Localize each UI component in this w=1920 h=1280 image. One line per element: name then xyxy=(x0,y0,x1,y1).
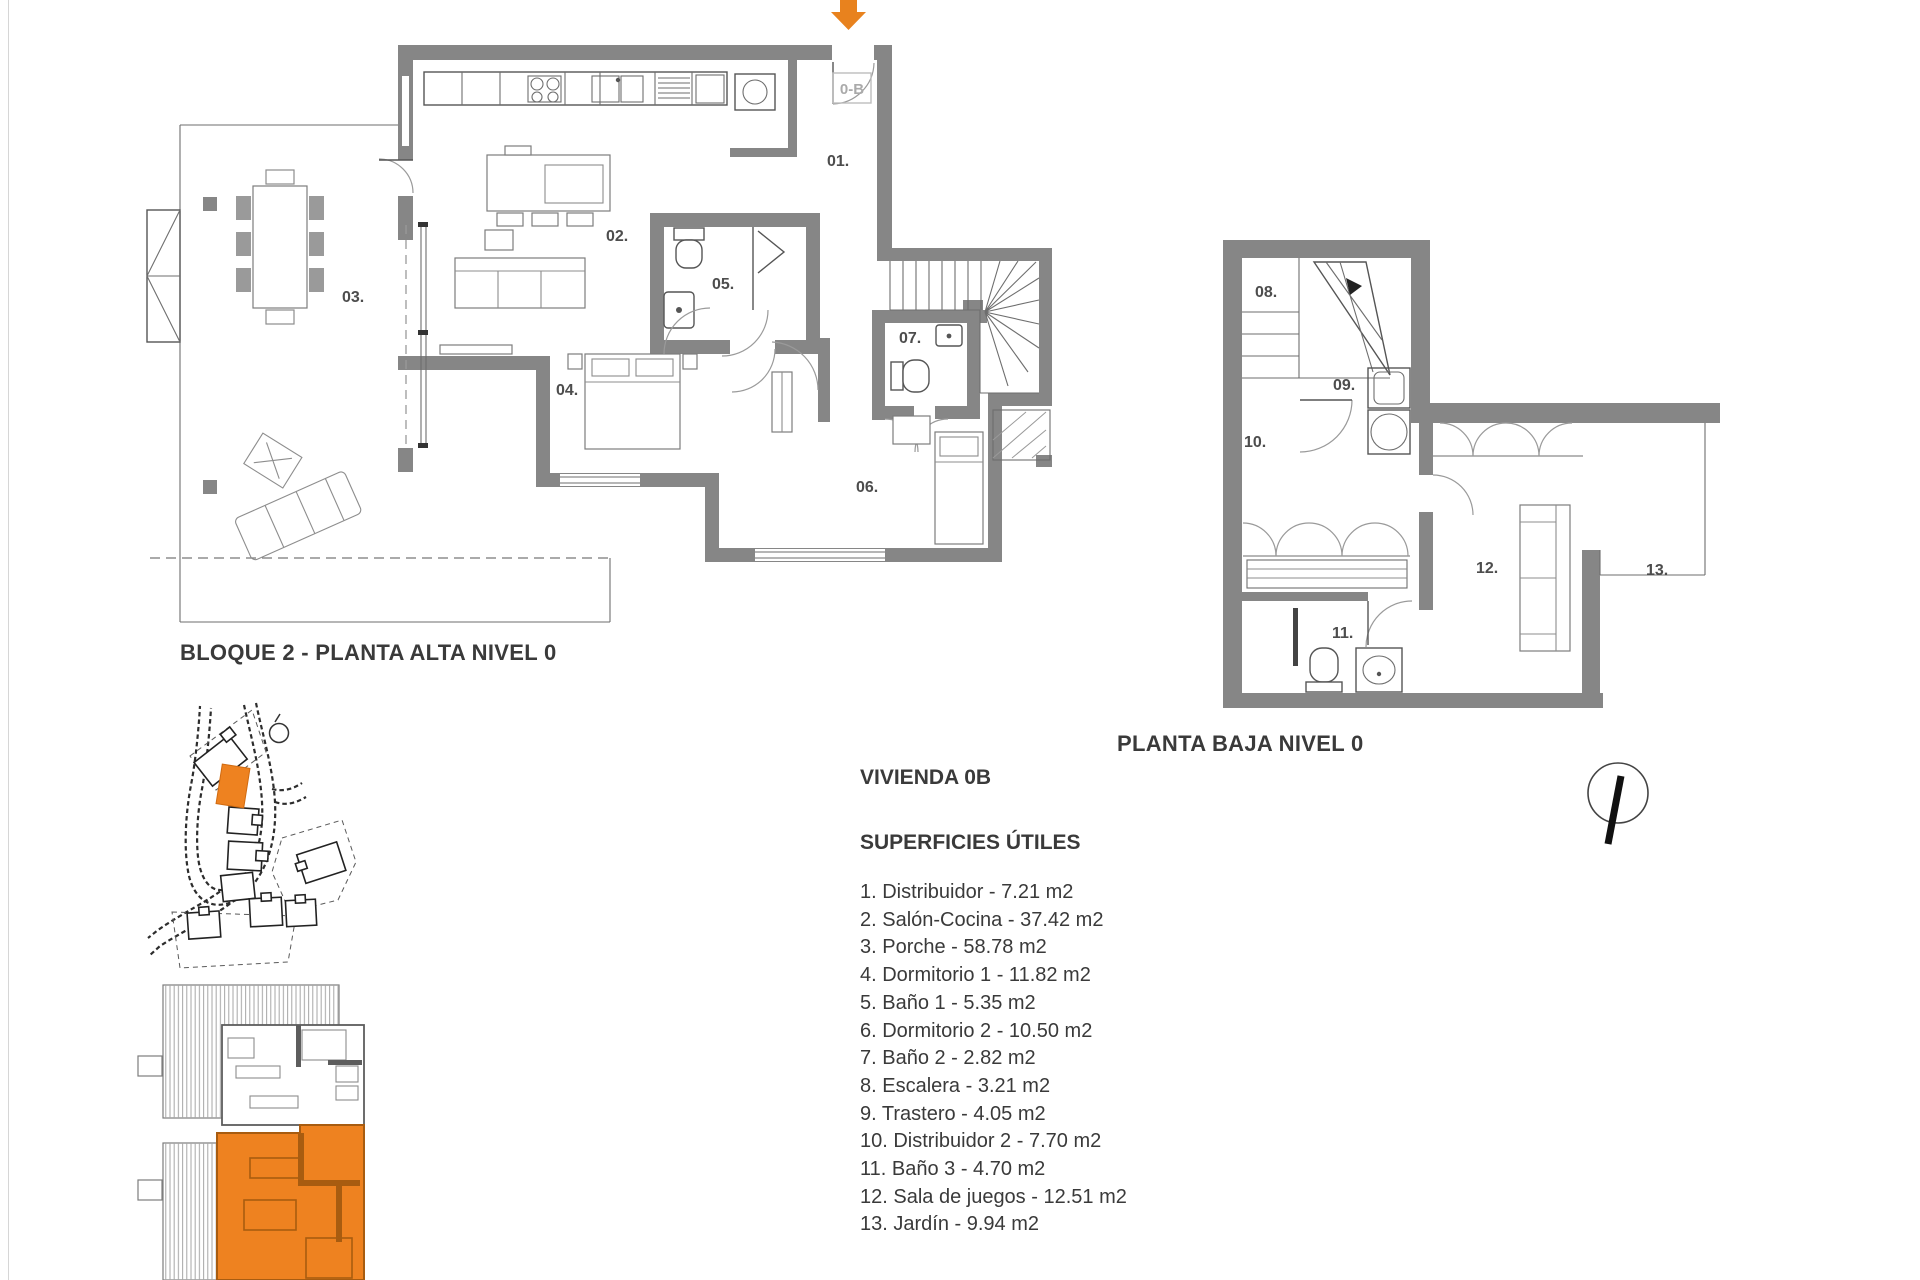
room-label-08: 08. xyxy=(1255,284,1277,301)
room-label-07: 07. xyxy=(899,330,921,347)
room-label-01: 01. xyxy=(827,153,849,170)
room-label-12: 12. xyxy=(1476,560,1498,577)
sun-lounger xyxy=(234,470,362,561)
room-label-03: 03. xyxy=(342,289,364,306)
legend-item: 9. Trastero - 4.05 m2 xyxy=(860,1101,1280,1129)
room-label-09: 09. xyxy=(1333,377,1355,394)
legend-item: 11. Baño 3 - 4.70 m2 xyxy=(860,1156,1280,1184)
lower-floor-plan: 08. 09. 10. 11. 12. 13. xyxy=(1210,232,1730,722)
entry-label-text: 0-B xyxy=(840,81,864,98)
site-highlight-unit xyxy=(216,764,250,808)
lower-plan-caption: PLANTA BAJA NIVEL 0 xyxy=(1117,731,1364,757)
louver-window xyxy=(147,210,180,342)
tv-bench xyxy=(440,345,512,354)
legend-item: 4. Dormitorio 1 - 11.82 m2 xyxy=(860,962,1280,990)
door-arc-distribuidor xyxy=(1300,400,1352,452)
legend-item: 13. Jardín - 9.94 m2 xyxy=(860,1211,1280,1239)
sofa xyxy=(455,230,585,308)
legend-item: 2. Salón-Cocina - 37.42 m2 xyxy=(860,907,1280,935)
upper-plan-caption: BLOQUE 2 - PLANTA ALTA NIVEL 0 xyxy=(180,640,557,666)
upper-floor-plan: 0-B xyxy=(0,0,1100,660)
room-label-05: 05. xyxy=(712,276,734,293)
site-plan xyxy=(128,698,378,990)
gamesroom-sofa xyxy=(1520,505,1570,651)
walls-lower xyxy=(1223,240,1720,708)
bathroom-1 xyxy=(664,227,784,392)
legend-item: 1. Distribuidor - 7.21 m2 xyxy=(860,879,1280,907)
north-indicator-icon xyxy=(1575,752,1675,857)
kitchen-island xyxy=(487,146,610,226)
room-label-04: 04. xyxy=(556,382,578,399)
floorplan-sheet: { "colors": { "accent_orange": "#e8821e"… xyxy=(0,0,1920,1280)
bathroom-3 xyxy=(1306,601,1412,692)
dining-table xyxy=(236,170,324,324)
compass-icon xyxy=(270,714,289,743)
corridor-wardrobe xyxy=(1243,523,1410,588)
legend-subtitle: SUPERFICIES ÚTILES xyxy=(860,831,1280,855)
laundry-closet xyxy=(735,74,775,110)
door-arc-gamesroom xyxy=(1433,475,1473,515)
kitchen-counter xyxy=(424,72,727,105)
legend-item: 8. Escalera - 3.21 m2 xyxy=(860,1073,1280,1101)
site-houses xyxy=(187,727,346,939)
unit-key-plan xyxy=(112,973,366,1280)
room-label-10: 10. xyxy=(1244,434,1266,451)
room-label-13: 13. xyxy=(1646,562,1668,579)
legend-item: 10. Distribuidor 2 - 7.70 m2 xyxy=(860,1128,1280,1156)
storage-appliances xyxy=(1368,368,1410,454)
legend-item: 12. Sala de juegos - 12.51 m2 xyxy=(860,1184,1280,1212)
down-arrow-icon xyxy=(831,0,866,30)
gamesroom-wardrobe xyxy=(1433,423,1583,456)
areas-legend: VIVIENDA 0B SUPERFICIES ÚTILES 1. Distri… xyxy=(860,766,1280,1239)
legend-title: VIVIENDA 0B xyxy=(860,766,1280,790)
legend-item: 5. Baño 1 - 5.35 m2 xyxy=(860,990,1280,1018)
room-label-11: 11. xyxy=(1332,625,1353,642)
legend-list: 1. Distribuidor - 7.21 m2 2. Salón-Cocin… xyxy=(860,879,1280,1239)
staircase-lower xyxy=(1242,258,1390,378)
upper-unit xyxy=(222,1025,364,1125)
legend-item: 7. Baño 2 - 2.82 m2 xyxy=(860,1045,1280,1073)
room-label-02: 02. xyxy=(606,228,628,245)
legend-item: 6. Dormitorio 2 - 10.50 m2 xyxy=(860,1018,1280,1046)
highlighted-unit-0b xyxy=(217,1125,364,1280)
room-label-06: 06. xyxy=(856,479,878,496)
garden-boundary xyxy=(1600,423,1705,575)
folding-chair xyxy=(244,433,302,488)
bedroom-2 xyxy=(755,342,983,561)
bedroom-1 xyxy=(560,354,697,486)
legend-item: 3. Porche - 58.78 m2 xyxy=(860,934,1280,962)
